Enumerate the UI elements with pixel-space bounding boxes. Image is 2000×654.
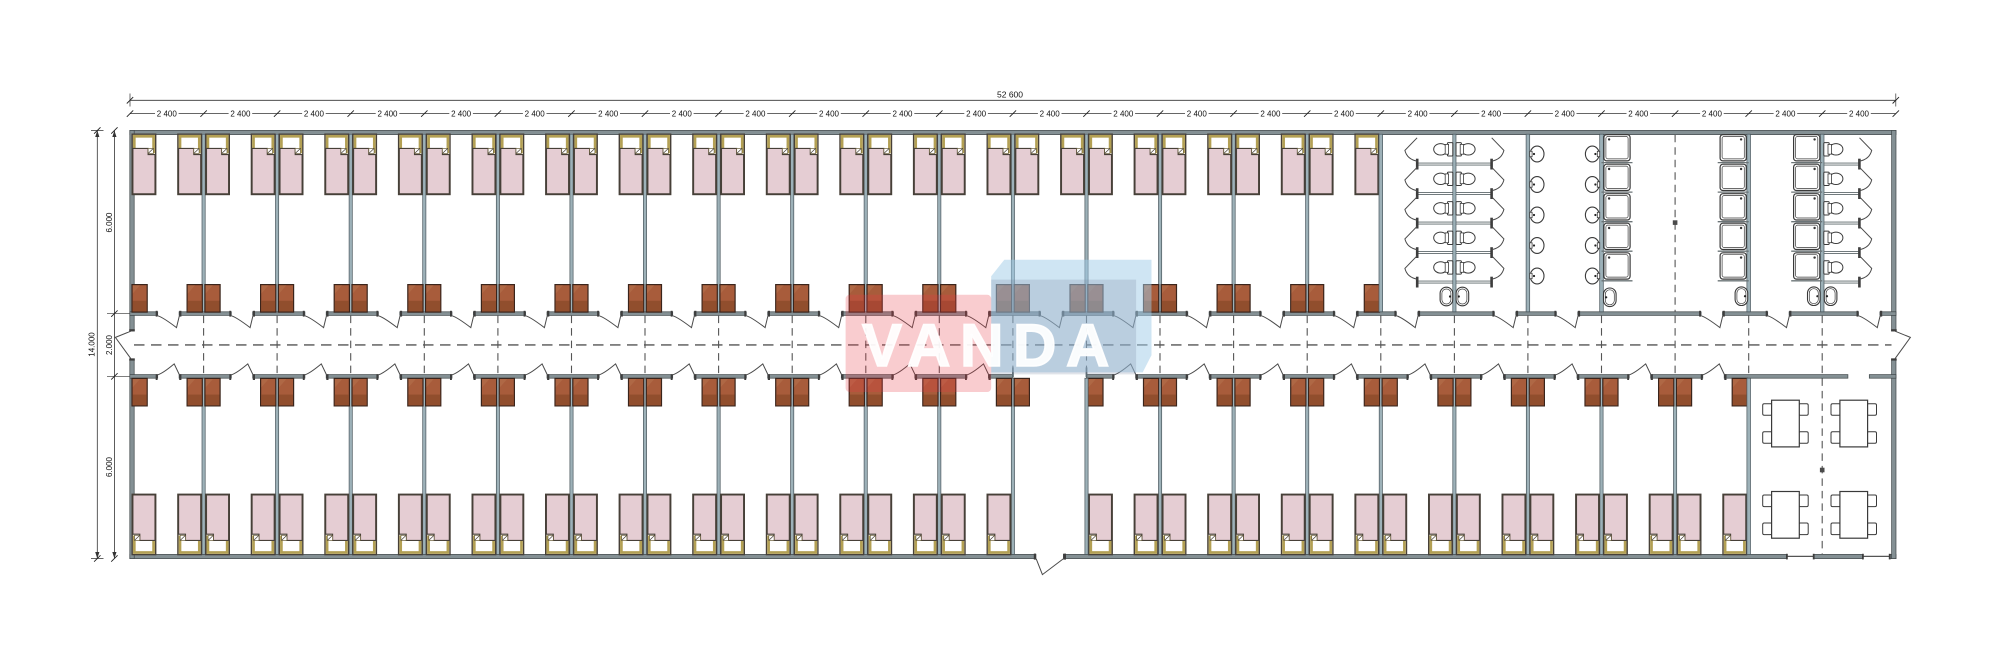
svg-text:2 400: 2 400 [819,109,840,118]
svg-text:2 400: 2 400 [672,109,693,118]
svg-text:2 400: 2 400 [1481,109,1502,118]
svg-text:2 400: 2 400 [1775,109,1796,118]
svg-text:2 400: 2 400 [1187,109,1208,118]
svg-text:2 400: 2 400 [451,109,472,118]
svg-text:2 400: 2 400 [230,109,251,118]
svg-text:2 400: 2 400 [598,109,619,118]
svg-text:2 400: 2 400 [377,109,398,118]
svg-text:2 400: 2 400 [1113,109,1134,118]
svg-text:2 400: 2 400 [1628,109,1649,118]
svg-text:2 400: 2 400 [525,109,546,118]
svg-text:2 400: 2 400 [1555,109,1576,118]
svg-text:2 400: 2 400 [892,109,913,118]
svg-text:2 400: 2 400 [1260,109,1281,118]
svg-text:6.000: 6.000 [105,456,114,477]
svg-text:2 400: 2 400 [304,109,325,118]
svg-text:6.000: 6.000 [105,212,114,233]
svg-text:2 400: 2 400 [1334,109,1355,118]
svg-text:52 600: 52 600 [997,90,1023,100]
svg-text:2 400: 2 400 [1702,109,1723,118]
svg-text:VANDA: VANDA [862,312,1119,379]
svg-text:2 400: 2 400 [1408,109,1429,118]
svg-text:2 400: 2 400 [966,109,987,118]
svg-text:2.000: 2.000 [105,334,114,355]
svg-text:2 400: 2 400 [1040,109,1061,118]
svg-text:2 400: 2 400 [157,109,178,118]
svg-text:14.000: 14.000 [88,332,97,357]
svg-text:2 400: 2 400 [1849,109,1870,118]
svg-text:2 400: 2 400 [745,109,766,118]
